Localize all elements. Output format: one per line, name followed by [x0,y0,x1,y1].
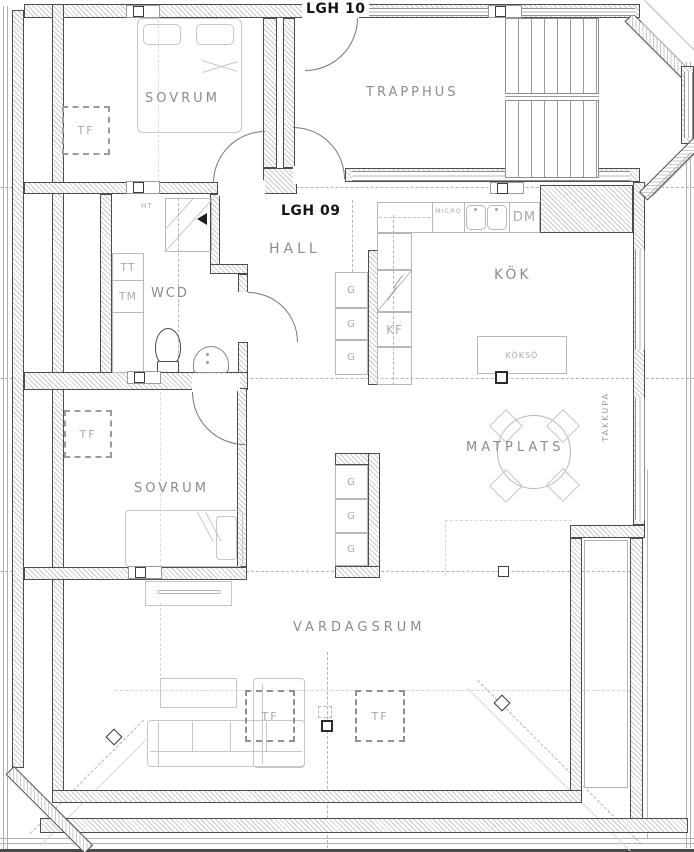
hip-marker-right [494,695,511,712]
column-marker-kitchen [495,371,508,384]
dormer-edge-line [647,470,648,838]
column-marker [135,567,146,578]
room-label-trapphus: TRAPPHUS [366,85,459,100]
fridge-freezer: KF [377,312,412,347]
tf-label: TF [79,428,96,441]
column-marker [497,183,508,194]
wardrobe-cell-3: G [335,533,368,566]
wall-left-outer [12,10,24,768]
washbasin [193,346,229,373]
laundry-counter [112,312,144,373]
counter-cell-bottom [377,347,412,385]
closet-cell-2: G [335,308,368,340]
g-label: G [347,477,356,488]
wardrobe-cell-2: G [335,499,368,533]
kokso-label: KÖKSÖ [506,351,539,360]
g-label: G [347,511,356,522]
column-marker [495,6,506,17]
sofa-divider-2 [230,722,231,752]
ht-label: HT [141,202,153,210]
wall-wcd-right-upper [238,274,248,294]
room-label-vardagsrum: VARDAGSRUM [293,620,426,635]
tf-wardrobe-livingroom-left: TF [245,690,295,742]
counter-cell-top [377,233,412,270]
door-arc-bedroom-top [213,131,265,183]
room-label-kok: KÖK [494,267,532,283]
closet-centre-line [352,200,353,272]
sofa-divider-1 [192,722,193,752]
unit-label-lgh09: LGH 09 [278,203,344,219]
ceiling-line-matplats-v [445,520,446,576]
pillow-left [143,24,181,45]
eave-line-left-outer [3,6,4,849]
g-label: G [347,319,356,330]
g-label: G [347,352,356,363]
dormer-recess [584,540,628,788]
wall-chamfer-bottom-left [6,766,94,852]
door-arc-lgh09 [293,127,345,179]
sink-tap-2 [495,208,498,211]
g-label: G [347,285,356,296]
wall-bedroom-top-right [263,18,277,168]
kitchen-island: KÖKSÖ [477,336,567,374]
tt-label: TT [120,261,135,274]
room-label-sovrum-lower: SOVRUM [134,481,209,496]
bay-glazing-bottom [647,152,692,197]
stair-flight-upper [505,18,599,94]
microwave: MICRO [432,202,465,233]
wall-wcd-left [100,194,112,385]
closet-cell-3: G [335,340,368,375]
washbasin-tap-1 [206,353,209,356]
column-marker [134,372,145,383]
tf-wardrobe-livingroom-right: TF [355,690,405,742]
sofa-armrest-line [158,722,159,766]
wall-top-left [24,4,303,18]
tv-screen [157,590,221,594]
room-label-hall: HALL [269,241,321,257]
tf-label: TF [261,710,278,723]
wall-step-right [570,525,645,538]
counter-centre-dash [379,217,430,218]
wall-bedroom-top-bottom [24,182,218,194]
wall-entry-post [263,168,297,194]
washbasin-tap-2 [206,361,209,364]
floor-plan: TF HT TT TM MICRO DM KF G G G KÖKSÖ G G … [0,0,694,852]
wall-knee-right [570,538,582,793]
sink-tap-1 [474,208,477,211]
takkupa-label: TAKKUPA [601,392,610,442]
wall-knee-bottom [52,790,582,803]
tf-wardrobe-bedroom-lower: TF [64,410,112,458]
column-marker [133,6,144,17]
pillow-right [196,24,234,45]
tf-label: TF [77,124,94,137]
tf-wardrobe-bedroom-top: TF [62,106,110,155]
coffee-table [160,678,237,708]
tm-label: TM [119,290,137,303]
g-label: G [347,544,356,555]
unit-label-lgh10: LGH 10 [303,1,369,17]
wall-right-outer-lower [630,538,643,830]
room-label-sovrum-top: SOVRUM [145,91,220,106]
roof-post [321,720,333,732]
eave-line-bottom-1 [0,838,694,839]
tumble-dryer: TT [112,253,144,281]
stair-flight-lower [505,100,599,178]
wall-kitchen-mass [540,185,633,233]
eave-line-right-inner [690,62,691,848]
ceiling-line-matplats-h [445,520,572,521]
washing-machine: TM [112,280,144,313]
shower-arrow-icon [197,213,207,225]
wall-bottom-outer [40,818,688,833]
eave-line-left-inner [7,6,8,849]
window-bay [684,72,693,138]
door-arc-lgh10 [305,18,358,71]
kf-label: KF [386,323,403,337]
column-marker-matplats [498,566,509,577]
eave-line-bottom-2 [0,843,694,844]
door-opening-bedroom-lower [192,374,240,391]
door-arc-wcd [248,292,298,342]
micro-label: MICRO [435,207,462,215]
eave-line-right-outer [686,62,687,848]
wardrobe-cap-bottom [335,566,380,578]
wardrobe-back [368,453,380,578]
window-kitchen [635,250,645,350]
dm-label: DM [513,210,536,225]
column-marker [133,182,144,193]
door-arc-bedroom-lower [192,392,245,445]
closet-cell-1: G [335,272,368,308]
dishwasher: DM [509,202,540,233]
window-matplats [635,398,645,520]
room-label-matplats: MATPLATS [466,440,565,455]
roof-post-outline [318,706,332,718]
wardrobe-cell-1: G [335,465,368,499]
stair-landing-line [505,96,599,97]
wall-wcd-step [210,264,248,274]
tf-label: TF [371,710,388,723]
room-label-wcd: WCD [151,286,189,301]
